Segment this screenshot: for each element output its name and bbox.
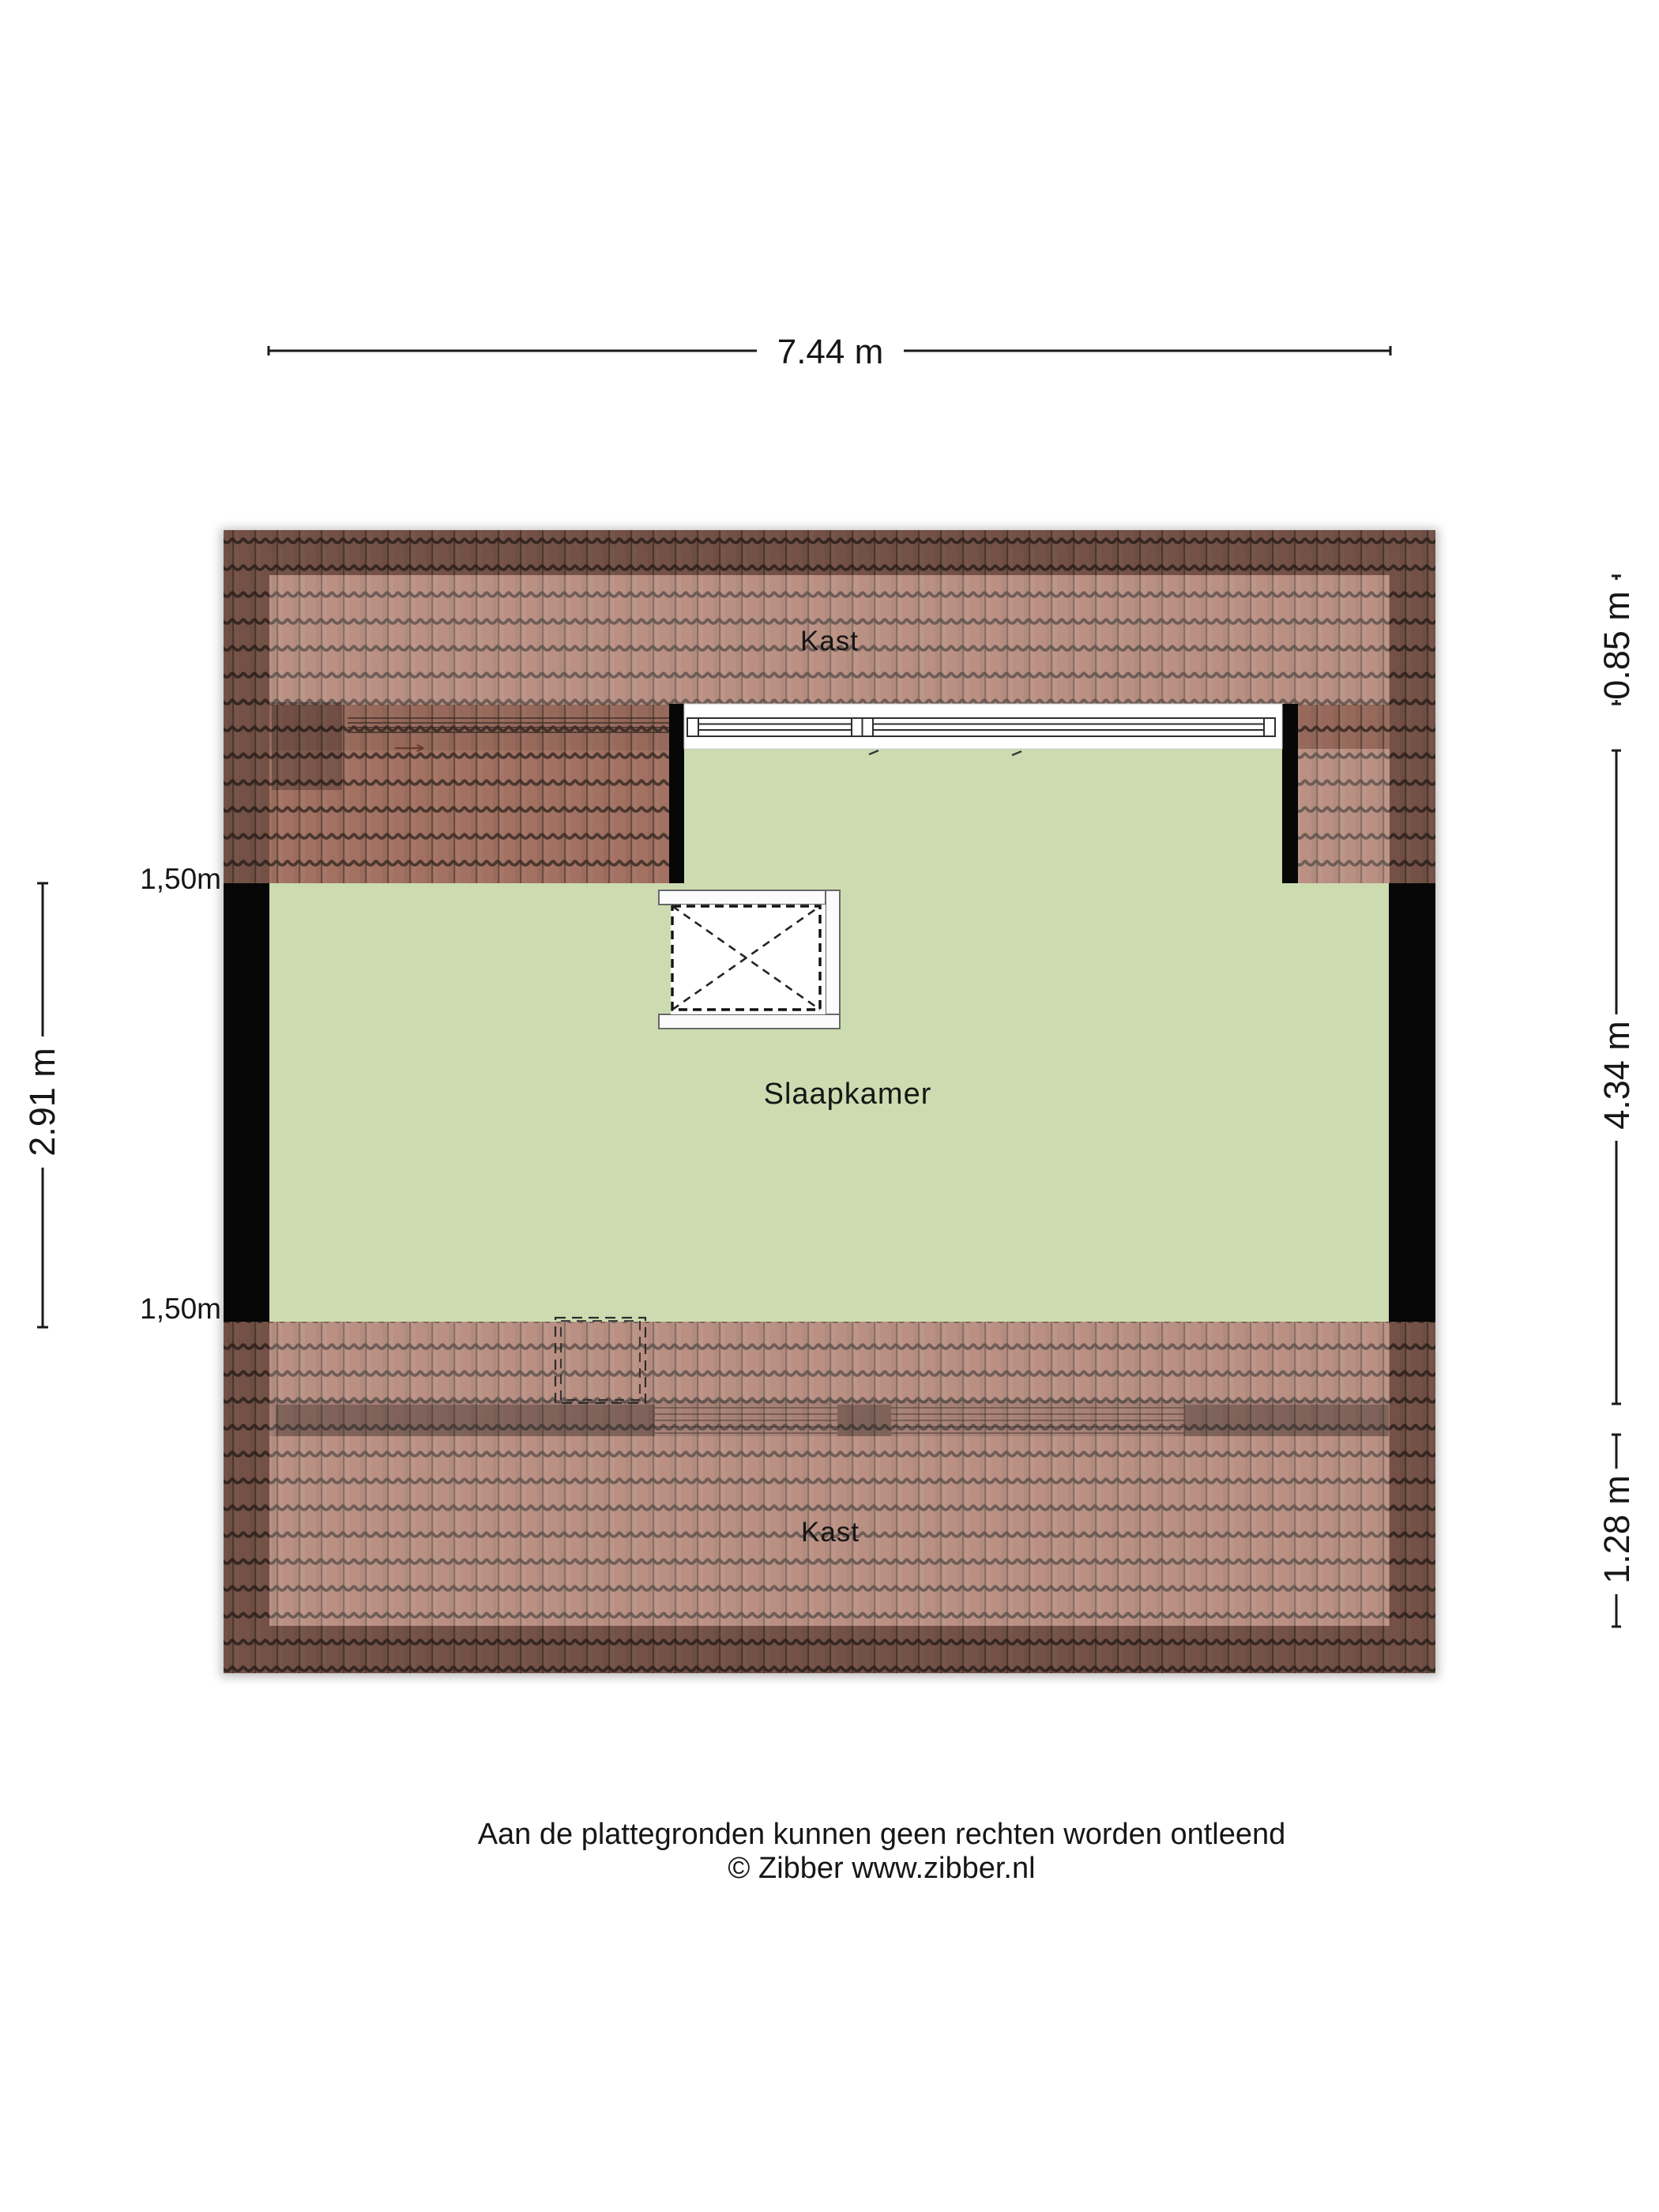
svg-text:Aan de plattegronden kunnen ge: Aan de plattegronden kunnen geen rechten…: [478, 1818, 1286, 1851]
svg-text:© Zibber www.zibber.nl: © Zibber www.zibber.nl: [728, 1852, 1035, 1885]
svg-text:1,50m: 1,50m: [140, 1292, 221, 1325]
svg-text:1,50m: 1,50m: [140, 863, 221, 895]
svg-text:2.91 m: 2.91 m: [22, 1048, 62, 1157]
svg-text:4.34 m: 4.34 m: [1597, 1021, 1637, 1130]
svg-text:Kast: Kast: [801, 1517, 860, 1548]
svg-text:7.44 m: 7.44 m: [777, 333, 884, 371]
svg-text:Slaapkamer: Slaapkamer: [764, 1078, 932, 1111]
svg-text:1.28 m: 1.28 m: [1597, 1475, 1637, 1584]
svg-text:0.85 m: 0.85 m: [1597, 591, 1637, 700]
svg-text:Kast: Kast: [800, 626, 859, 656]
